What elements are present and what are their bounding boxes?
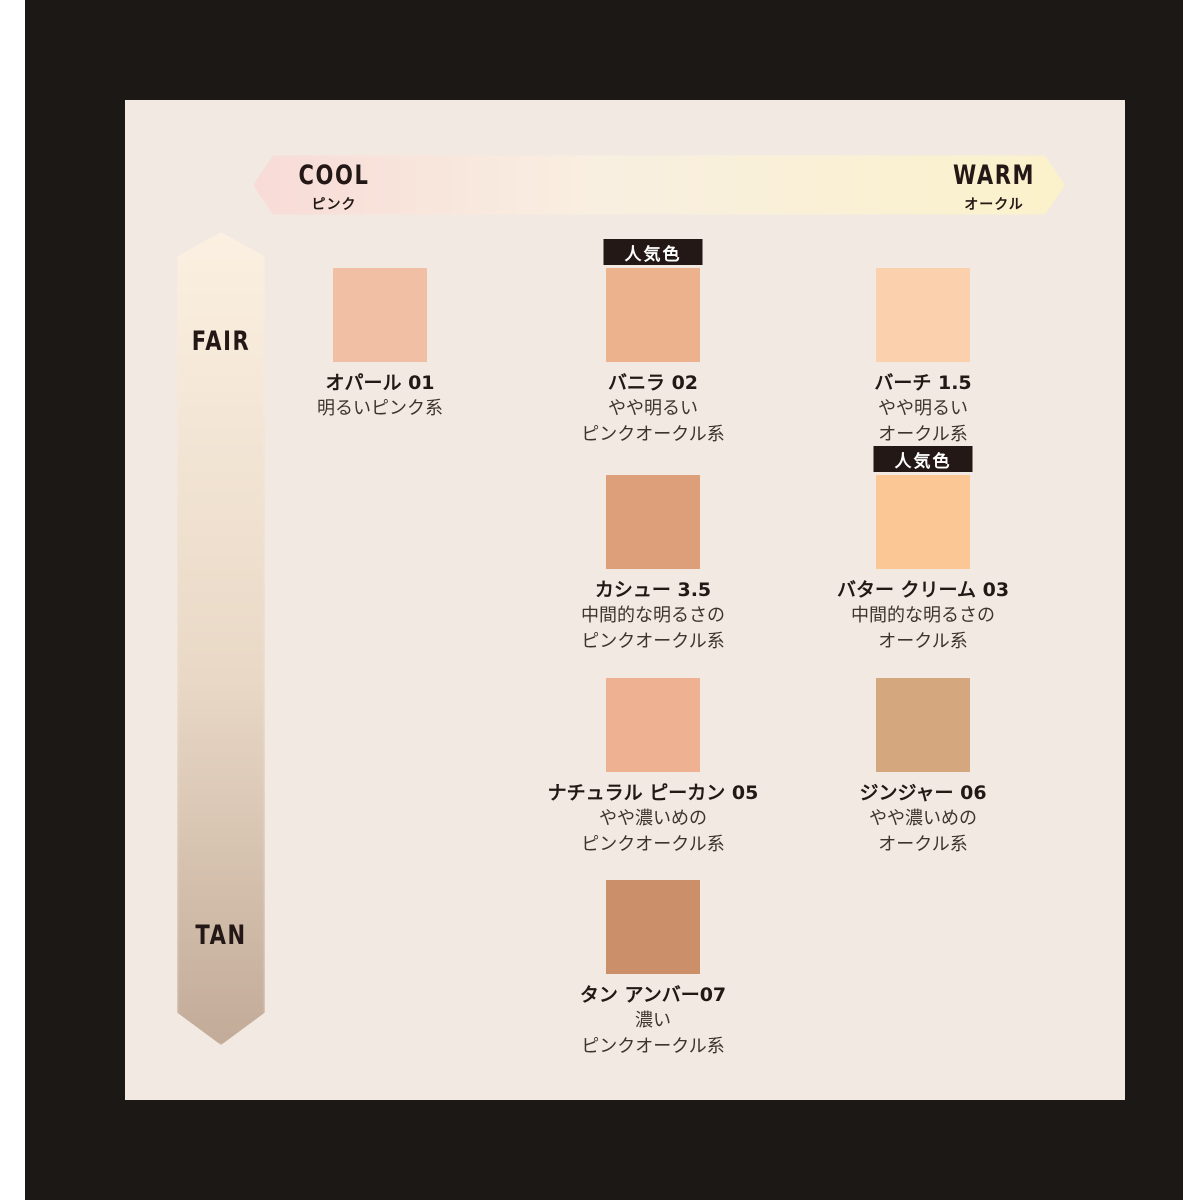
- shade-swatch: [606, 880, 700, 974]
- popular-badge: 人気色: [604, 239, 703, 265]
- shade-cell-vanilla-02: 人気色 バニラ 02 やや明るい ピンクオークル系: [518, 268, 788, 448]
- shade-description: 中間的な明るさの ピンクオークル系: [581, 603, 725, 655]
- cool-sublabel: ピンク: [264, 194, 404, 214]
- shade-name: カシュー 3.5: [595, 577, 711, 603]
- shade-chart-page: COOL ピンク WARM オークル FAIR TAN オパール 01 明るいピ…: [0, 0, 1200, 1200]
- shade-description: 濃い ピンクオークル系: [581, 1008, 724, 1060]
- shade-cell-ginger-06: ジンジャー 06 やや濃いめの オークル系: [788, 678, 1058, 858]
- tan-label: TAN: [166, 922, 275, 949]
- shade-swatch: [606, 268, 700, 362]
- shade-swatch: [876, 475, 970, 569]
- shade-swatch: [876, 268, 970, 362]
- shade-cell-opal-01: オパール 01 明るいピンク系: [245, 268, 515, 422]
- shade-name: バーチ 1.5: [874, 370, 971, 396]
- shade-name: ナチュラル ピーカン 05: [548, 780, 759, 806]
- shade-cell-butter-cream-03: 人気色 バター クリーム 03 中間的な明るさの オークル系: [788, 475, 1058, 655]
- shade-swatch: [333, 268, 427, 362]
- cool-label: COOL: [279, 162, 388, 189]
- shade-description: やや濃いめの オークル系: [869, 806, 977, 858]
- warm-axis-label-block: WARM オークル: [924, 162, 1064, 214]
- warm-label: WARM: [939, 162, 1048, 189]
- shade-name: オパール 01: [325, 370, 434, 396]
- shade-cell-cashew-3-5: カシュー 3.5 中間的な明るさの ピンクオークル系: [518, 475, 788, 655]
- shade-name: バター クリーム 03: [837, 577, 1009, 603]
- shade-chart-panel: COOL ピンク WARM オークル FAIR TAN オパール 01 明るいピ…: [125, 100, 1125, 1100]
- shade-name: バニラ 02: [608, 370, 698, 396]
- shade-cell-tan-amber-07: タン アンバー07 濃い ピンクオークル系: [518, 880, 788, 1060]
- shade-name: タン アンバー07: [580, 982, 726, 1008]
- shade-description: 明るいピンク系: [317, 396, 443, 422]
- shade-description: やや明るい ピンクオークル系: [581, 396, 724, 448]
- shade-swatch: [606, 678, 700, 772]
- warm-sublabel: オークル: [924, 194, 1064, 214]
- shade-description: やや濃いめの ピンクオークル系: [581, 806, 724, 858]
- shade-cell-birch-1-5: バーチ 1.5 やや明るい オークル系: [788, 268, 1058, 448]
- black-frame: COOL ピンク WARM オークル FAIR TAN オパール 01 明るいピ…: [25, 0, 1183, 1200]
- shade-swatch: [606, 475, 700, 569]
- shade-description: やや明るい オークル系: [878, 396, 968, 448]
- shade-cell-natural-pecan-05: ナチュラル ピーカン 05 やや濃いめの ピンクオークル系: [518, 678, 788, 858]
- shade-description: 中間的な明るさの オークル系: [851, 603, 995, 655]
- cool-axis-label-block: COOL ピンク: [264, 162, 404, 214]
- popular-badge: 人気色: [874, 446, 973, 472]
- shade-swatch: [876, 678, 970, 772]
- shade-name: ジンジャー 06: [859, 780, 986, 806]
